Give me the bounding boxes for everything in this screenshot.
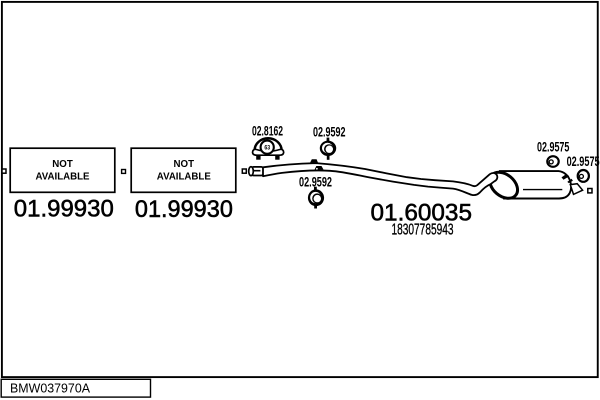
svg-text:NOT: NOT <box>174 159 195 170</box>
svg-text:02.9592: 02.9592 <box>313 125 346 140</box>
svg-text:02.9575: 02.9575 <box>567 154 600 169</box>
svg-text:18307785943: 18307785943 <box>392 221 454 238</box>
svg-text:AVAILABLE: AVAILABLE <box>36 172 90 183</box>
svg-text:01.99930: 01.99930 <box>14 196 114 223</box>
svg-text:AVAILABLE: AVAILABLE <box>157 172 211 183</box>
svg-text:NOT: NOT <box>52 159 73 170</box>
svg-text:02.8162: 02.8162 <box>252 123 283 138</box>
svg-text:01.99930: 01.99930 <box>135 196 233 223</box>
svg-text:02.9575: 02.9575 <box>537 140 570 155</box>
svg-text:BMW037970A: BMW037970A <box>10 380 90 395</box>
svg-text:63: 63 <box>264 145 270 152</box>
